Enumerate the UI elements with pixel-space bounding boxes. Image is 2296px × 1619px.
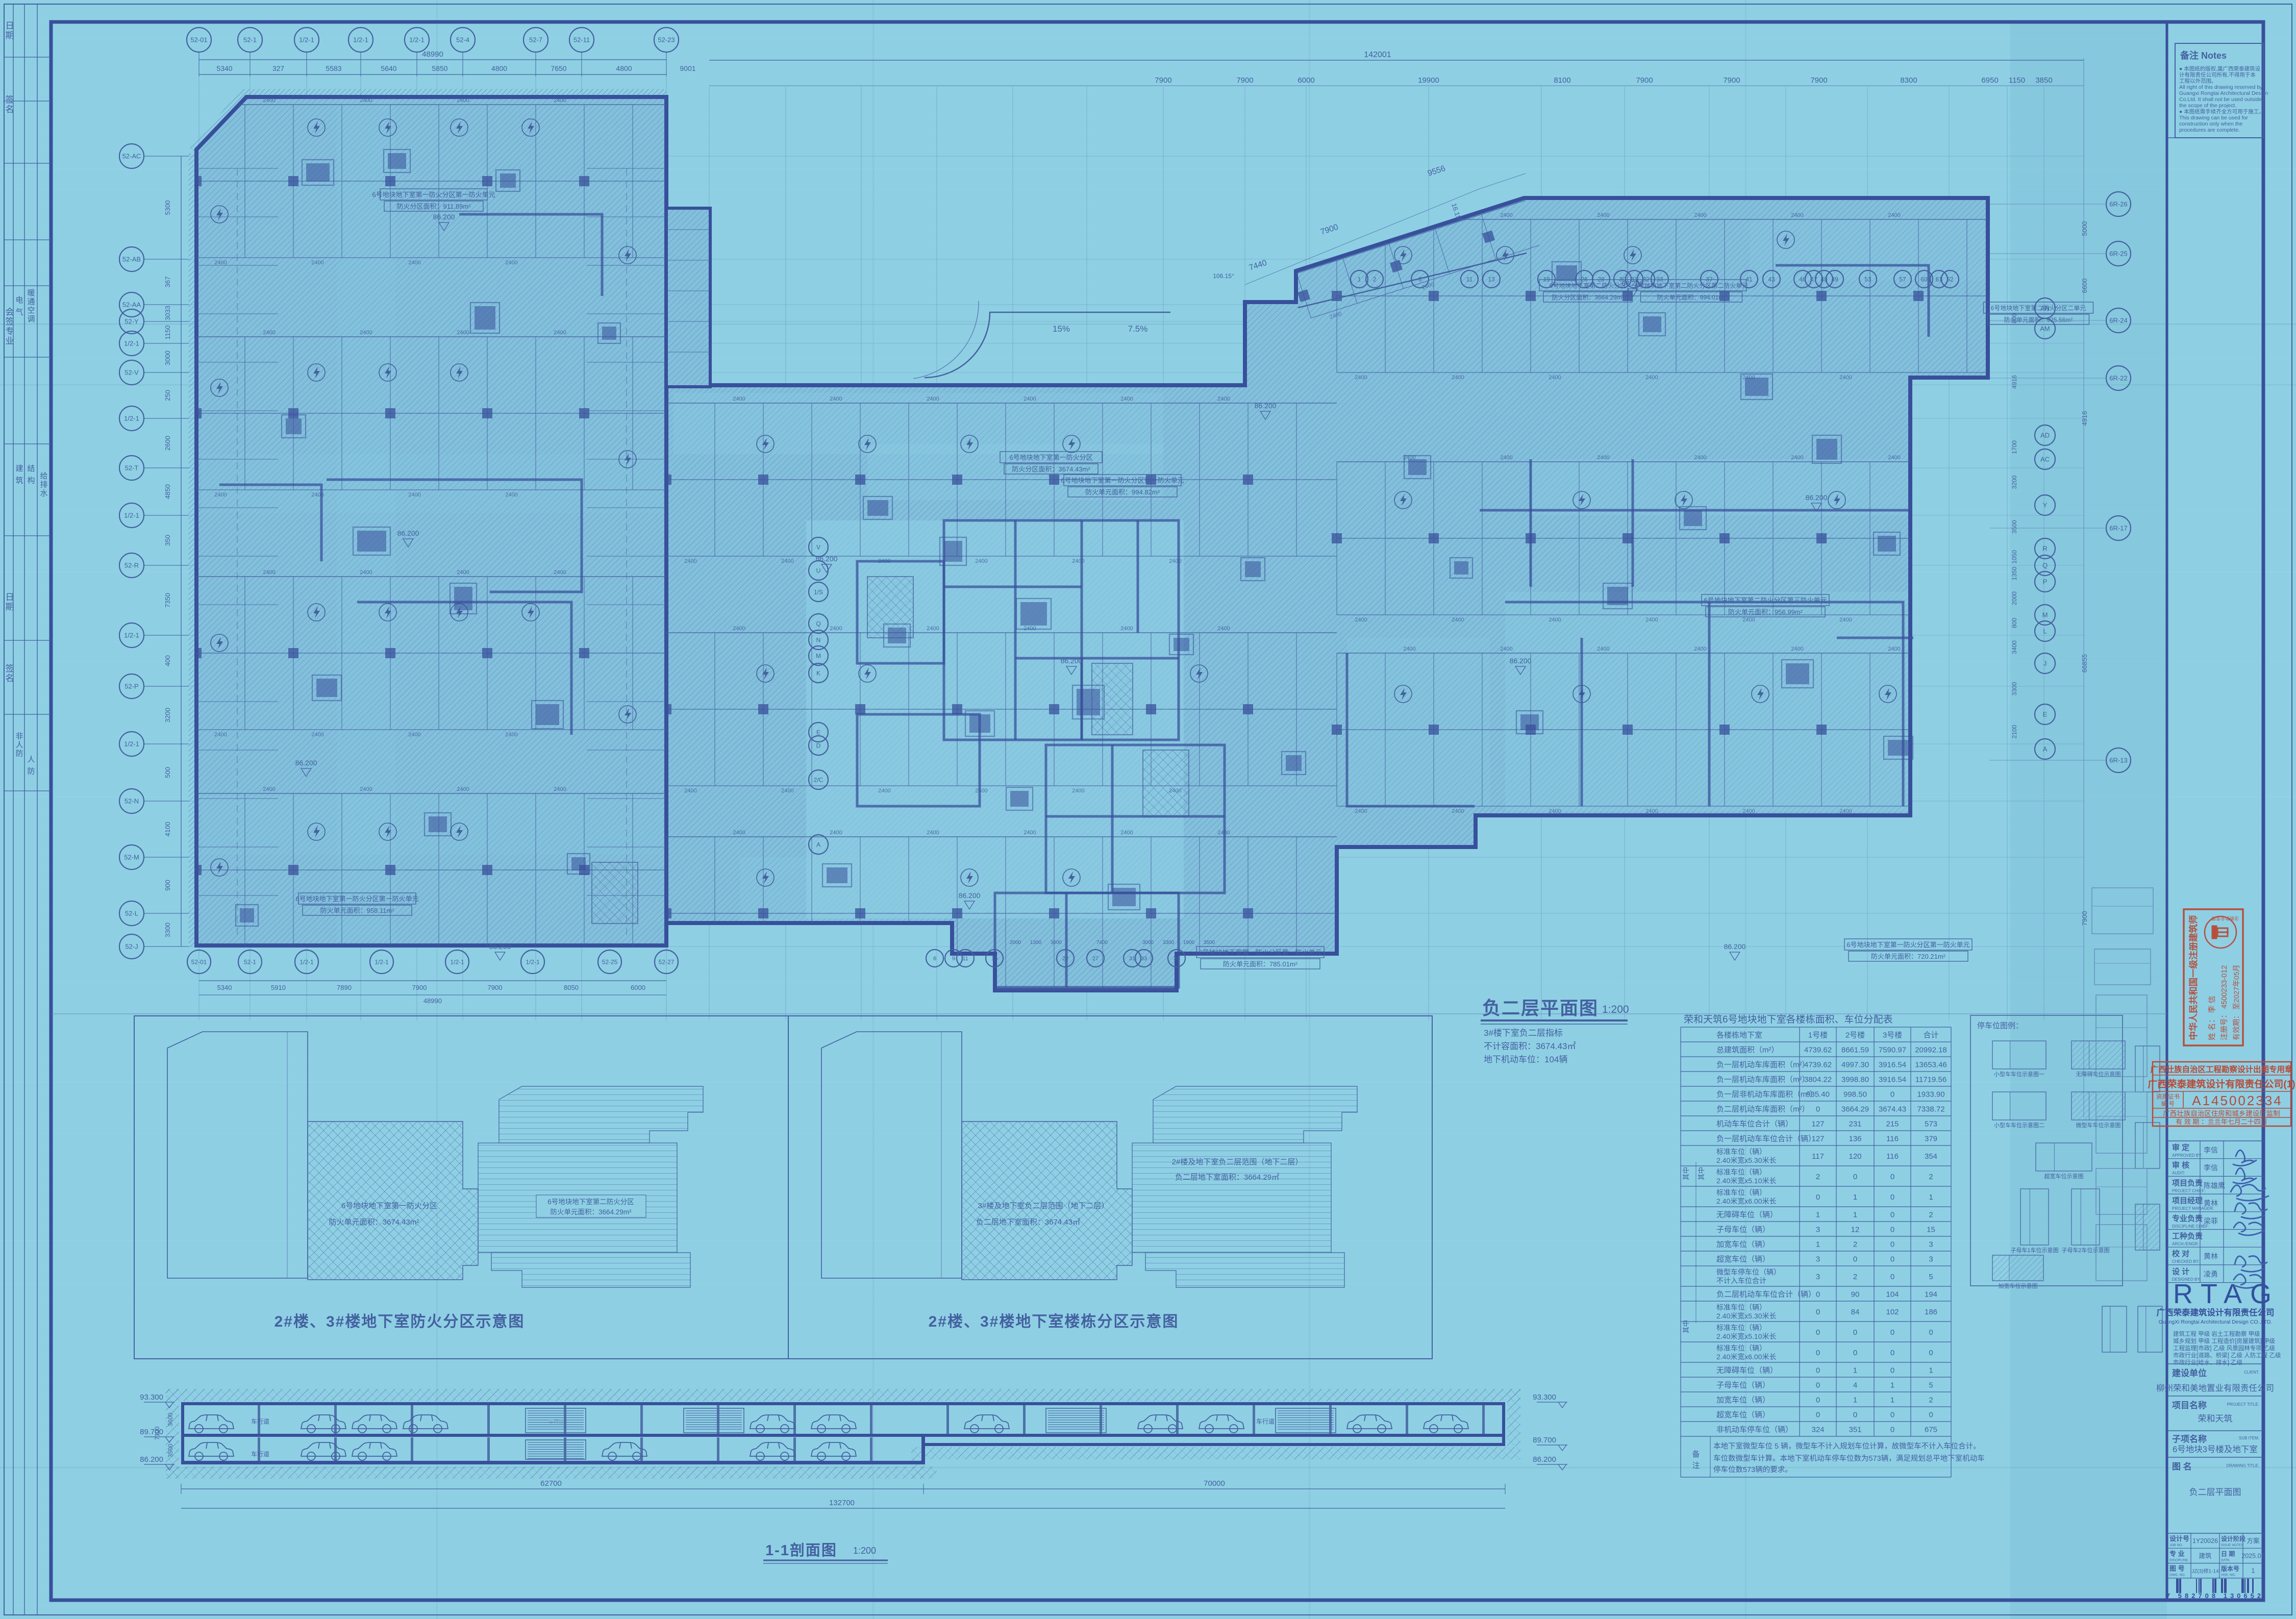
svg-text:0: 0 [1929, 1349, 1933, 1357]
svg-text:4739.62: 4739.62 [1804, 1046, 1832, 1055]
svg-text:13653.46: 13653.46 [1915, 1061, 1947, 1069]
svg-text:19: 19 [1543, 276, 1550, 283]
svg-text:项目名称: 项目名称 [2172, 1400, 2207, 1410]
svg-text:超宽车位示意图: 超宽车位示意图 [2044, 1173, 2084, 1180]
svg-text:防火单元面积：956.99m²: 防火单元面积：956.99m² [1728, 608, 1803, 616]
svg-text:黄林: 黄林 [2204, 1252, 2218, 1260]
svg-text:标准车位（辆）: 标准车位（辆） [1716, 1324, 1766, 1332]
svg-text:52-1: 52-1 [243, 36, 257, 44]
svg-text:142001: 142001 [1364, 51, 1391, 59]
svg-text:2400: 2400 [311, 732, 323, 738]
svg-text:车位数微型车计算。本地下室机动车停车位数为573辆，满足规划: 车位数微型车计算。本地下室机动车停车位数为573辆，满足规划总平地下室机动车 [1713, 1454, 1985, 1463]
svg-text:11719.56: 11719.56 [1915, 1076, 1946, 1084]
svg-text:结 构: 结 构 [27, 464, 35, 485]
svg-text:2#楼及地下室负二层范围（地下二层）: 2#楼及地下室负二层范围（地下二层） [1172, 1158, 1303, 1166]
svg-text:52-01: 52-01 [191, 958, 207, 965]
svg-text:52-23: 52-23 [658, 36, 675, 44]
svg-text:小型车车位示意图一: 小型车车位示意图一 [1994, 1070, 2044, 1078]
svg-text:13: 13 [1488, 276, 1495, 283]
svg-text:7900: 7900 [1236, 76, 1253, 85]
svg-text:3#楼下室负二层指标: 3#楼下室负二层指标 [1484, 1028, 1563, 1038]
svg-text:CLIENT.: CLIENT. [2244, 1370, 2259, 1375]
svg-text:6600: 6600 [2081, 279, 2088, 293]
svg-text:3号楼: 3号楼 [1883, 1031, 1902, 1040]
svg-text:会签专业: 会签专业 [4, 307, 14, 346]
svg-text:2400: 2400 [1120, 396, 1133, 402]
svg-text:0: 0 [1890, 1426, 1894, 1434]
svg-text:1/2-1: 1/2-1 [124, 340, 139, 347]
svg-text:签名: 签名 [4, 664, 14, 683]
svg-text:6: 6 [933, 956, 936, 962]
svg-text:32: 32 [1642, 276, 1650, 283]
svg-text:有 效 期 ：亖亖年七月二十四日: 有 效 期 ：亖亖年七月二十四日 [2176, 1118, 2267, 1126]
svg-text:This drawing can be used for: This drawing can be used for [2179, 115, 2248, 121]
svg-text:1号楼: 1号楼 [1808, 1031, 1828, 1040]
svg-text:ISSUE NOTES: ISSUE NOTES [2221, 1543, 2243, 1547]
svg-text:4800: 4800 [491, 64, 507, 72]
svg-text:0: 0 [1890, 1193, 1894, 1202]
svg-text:0: 0 [1853, 1328, 1857, 1337]
svg-text:2400: 2400 [360, 786, 372, 792]
svg-text:2: 2 [1929, 1173, 1933, 1181]
svg-text:2400: 2400 [733, 396, 745, 402]
svg-text:0: 0 [1890, 1273, 1894, 1281]
svg-text:60: 60 [1920, 276, 1928, 283]
svg-text:52-11: 52-11 [573, 36, 590, 44]
svg-text:2400: 2400 [1120, 626, 1133, 632]
svg-text:5640: 5640 [381, 64, 396, 72]
svg-text:3916.54: 3916.54 [1879, 1061, 1906, 1069]
svg-text:M: M [2042, 611, 2048, 619]
svg-text:7900: 7900 [488, 984, 503, 991]
svg-text:2400: 2400 [1500, 646, 1512, 652]
svg-text:2400: 2400 [1452, 808, 1464, 814]
svg-text:1-1剖面图: 1-1剖面图 [765, 1541, 837, 1559]
svg-text:2400: 2400 [1645, 808, 1658, 814]
svg-text:负二层平面图: 负二层平面图 [2189, 1487, 2241, 1497]
svg-text:52-J: 52-J [125, 943, 138, 951]
svg-text:66855: 66855 [2081, 654, 2088, 672]
svg-text:2400: 2400 [360, 97, 372, 104]
svg-text:1/2-1: 1/2-1 [353, 36, 368, 44]
svg-text:19900: 19900 [1418, 76, 1439, 85]
svg-text:1: 1 [1853, 1396, 1857, 1405]
svg-text:6R-17: 6R-17 [2109, 525, 2127, 532]
svg-text:7100: 7100 [154, 1426, 161, 1440]
svg-text:李信: 李信 [2204, 1164, 2218, 1172]
svg-text:3500: 3500 [1204, 940, 1215, 945]
svg-text:86.200: 86.200 [140, 1455, 163, 1464]
svg-text:负二层地下室面积：3664.29㎡: 负二层地下室面积：3664.29㎡ [1175, 1173, 1279, 1182]
svg-text:52-AA: 52-AA [122, 301, 141, 309]
svg-text:231: 231 [1849, 1120, 1861, 1129]
svg-text:超宽车位（辆）: 超宽车位（辆） [1716, 1411, 1770, 1419]
svg-text:0: 0 [1929, 1411, 1933, 1419]
svg-text:项目经理: 项目经理 [2172, 1196, 2203, 1205]
svg-text:1/2-1: 1/2-1 [124, 740, 139, 748]
svg-text:2400: 2400 [1742, 617, 1755, 623]
svg-text:2400: 2400 [733, 830, 745, 836]
svg-text:1150: 1150 [2009, 76, 2025, 85]
svg-text:N: N [816, 636, 821, 643]
svg-text:6号地块地下室第一防火分区第一防火单元: 6号地块地下室第一防火分区第一防火单元 [1846, 941, 1969, 949]
svg-text:2#楼、3#楼地下室楼栋分区示意图: 2#楼、3#楼地下室楼栋分区示意图 [929, 1313, 1179, 1330]
svg-text:暖通空调: 暖通空调 [27, 289, 35, 323]
svg-text:1/2-1: 1/2-1 [526, 958, 540, 965]
svg-text:53: 53 [1864, 276, 1871, 283]
svg-text:2400: 2400 [554, 330, 566, 336]
svg-text:3500: 3500 [2011, 520, 2018, 534]
svg-text:1900: 1900 [1183, 940, 1195, 945]
svg-text:52-L: 52-L [125, 910, 138, 917]
svg-text:DATE.: DATE. [2221, 1558, 2231, 1562]
svg-text:● 本图纸需手续齐全方可用于施工。: ● 本图纸需手续齐全方可用于施工。 [2179, 108, 2264, 115]
svg-text:3: 3 [1816, 1255, 1820, 1264]
svg-text:2400: 2400 [975, 788, 987, 794]
svg-text:6: 6 [1418, 276, 1422, 283]
svg-text:广西壮族自治区住房和城乡建设厅监制: 广西壮族自治区住房和城乡建设厅监制 [2163, 1110, 2280, 1117]
svg-text:工程监理[市政] 乙级 风景园林专项 乙级: 工程监理[市政] 乙级 风景园林专项 乙级 [2173, 1344, 2275, 1352]
svg-text:6R-22: 6R-22 [2109, 375, 2127, 382]
svg-text:加宽车位示意图: 加宽车位示意图 [1999, 1282, 2038, 1289]
svg-text:2400: 2400 [1403, 646, 1415, 652]
svg-text:2400: 2400 [684, 788, 696, 794]
svg-text:2400: 2400 [1839, 375, 1852, 381]
svg-text:1Y20026: 1Y20026 [2192, 1537, 2218, 1545]
svg-text:防火分区面积：3674.43m²: 防火分区面积：3674.43m² [1012, 465, 1090, 473]
svg-text:70000: 70000 [1204, 1479, 1225, 1488]
svg-text:3: 3 [1816, 1273, 1820, 1281]
svg-text:机动车车位合计（辆）: 机动车车位合计（辆） [1716, 1120, 1793, 1129]
svg-text:86.200: 86.200 [1533, 1455, 1556, 1464]
svg-text:0: 0 [1816, 1290, 1820, 1299]
svg-text:2400: 2400 [505, 492, 517, 498]
svg-text:1/2-1: 1/2-1 [375, 958, 389, 965]
svg-text:4916: 4916 [2011, 375, 2018, 389]
svg-text:防火单元面积：785.01m²: 防火单元面积：785.01m² [1223, 960, 1298, 968]
svg-text:31: 31 [1129, 956, 1135, 962]
svg-text:城乡规划 甲级 工程造价[房屋建筑] 甲级: 城乡规划 甲级 工程造价[房屋建筑] 甲级 [2173, 1337, 2275, 1344]
svg-text:停车位数573辆的要求。: 停车位数573辆的要求。 [1713, 1465, 1792, 1474]
svg-text:2400: 2400 [1645, 375, 1658, 381]
svg-text:无障碍车位（辆）: 无障碍车位（辆） [1716, 1366, 1778, 1375]
svg-text:2400: 2400 [781, 558, 793, 564]
svg-text:2400: 2400 [1791, 212, 1803, 218]
svg-text:2#楼、3#楼地下室防火分区示意图: 2#楼、3#楼地下室防火分区示意图 [274, 1313, 525, 1330]
svg-text:6号地块地下室第一防火分区: 6号地块地下室第一防火分区 [341, 1201, 437, 1210]
svg-text:7900: 7900 [1155, 76, 1171, 85]
svg-text:中华人民共和国一级注册建筑师: 中华人民共和国一级注册建筑师 [2188, 915, 2199, 1040]
svg-text:84: 84 [1851, 1308, 1860, 1316]
svg-text:3: 3 [1929, 1240, 1933, 1249]
svg-text:负二层平面图: 负二层平面图 [1482, 998, 1599, 1018]
svg-text:有效期： 至2027年05月: 有效期： 至2027年05月 [2232, 964, 2240, 1040]
svg-text:1300: 1300 [1030, 940, 1042, 945]
svg-text:5300: 5300 [164, 201, 171, 215]
svg-text:2: 2 [1853, 1273, 1857, 1281]
svg-text:52-01: 52-01 [190, 36, 207, 44]
svg-text:DISCIPLINE.: DISCIPLINE. [2169, 1558, 2189, 1562]
svg-text:荣和天筑6号地块地下室各楼栋面积、车位分配表: 荣和天筑6号地块地下室各楼栋面积、车位分配表 [1684, 1014, 1893, 1025]
svg-text:0: 0 [1929, 1328, 1933, 1337]
svg-text:DWG. NO.: DWG. NO. [2169, 1574, 2185, 1577]
svg-text:专业负责: 专业负责 [2172, 1214, 2203, 1223]
svg-text:57: 57 [1899, 276, 1906, 283]
svg-text:86.200: 86.200 [1255, 402, 1277, 410]
svg-text:0: 0 [1890, 1349, 1894, 1357]
svg-text:36: 36 [1174, 956, 1180, 962]
svg-text:防火分区面积：3664.29m²: 防火分区面积：3664.29m² [1552, 293, 1624, 301]
svg-text:M: M [816, 652, 821, 659]
svg-text:7650: 7650 [551, 64, 566, 72]
svg-text:SUB ITEM.: SUB ITEM. [2239, 1436, 2259, 1440]
svg-text:0: 0 [1890, 1240, 1894, 1249]
svg-text:2400: 2400 [1024, 396, 1036, 402]
svg-text:R: R [2042, 545, 2047, 553]
svg-text:子项名称: 子项名称 [2172, 1434, 2207, 1444]
svg-text:广西荣泰建筑设计有限责任公司: 广西荣泰建筑设计有限责任公司 [2157, 1307, 2275, 1317]
svg-text:3000: 3000 [1051, 940, 1062, 945]
svg-text:0: 0 [1816, 1396, 1820, 1405]
svg-text:327: 327 [272, 64, 285, 72]
svg-text:子母车2车位示意图: 子母车2车位示意图 [2061, 1247, 2109, 1254]
svg-text:各楼栋地下室: 各楼栋地下室 [1716, 1031, 1762, 1040]
svg-text:2400: 2400 [1217, 396, 1230, 402]
svg-text:194: 194 [1925, 1290, 1937, 1299]
svg-text:2400: 2400 [1452, 617, 1464, 623]
svg-text:0: 0 [1890, 1211, 1894, 1219]
svg-text:2400: 2400 [457, 330, 469, 336]
svg-text:7338.72: 7338.72 [1917, 1105, 1944, 1114]
svg-text:小型车车位示意图二: 小型车车位示意图二 [1994, 1122, 2044, 1129]
svg-text:超宽车位（辆）: 超宽车位（辆） [1716, 1255, 1770, 1264]
svg-text:52-1: 52-1 [244, 958, 256, 965]
svg-text:22: 22 [1062, 956, 1068, 962]
svg-text:车行道: 车行道 [251, 1450, 269, 1458]
svg-text:子母车1车位示意图: 子母车1车位示意图 [2010, 1247, 2058, 1254]
svg-text:62700: 62700 [540, 1479, 562, 1488]
svg-text:4739.62: 4739.62 [1804, 1061, 1832, 1069]
svg-text:广西荣泰建筑设计有限责任公司(1): 广西荣泰建筑设计有限责任公司(1) [2148, 1078, 2295, 1090]
svg-text:102: 102 [1886, 1308, 1899, 1316]
svg-text:3200: 3200 [164, 708, 171, 723]
svg-text:3200: 3200 [2011, 475, 2018, 489]
svg-text:37: 37 [1706, 276, 1713, 283]
svg-text:总建筑面积（m²）: 总建筑面积（m²） [1716, 1046, 1779, 1055]
svg-text:2400: 2400 [1072, 788, 1084, 794]
svg-text:2400: 2400 [554, 97, 566, 104]
svg-text:AD: AD [2040, 432, 2050, 439]
svg-text:建筑工程 甲级 岩土工程勘察 甲级: 建筑工程 甲级 岩土工程勘察 甲级 [2173, 1330, 2260, 1337]
svg-text:3033: 3033 [164, 306, 171, 320]
svg-text:2.40米宽x5.10米长: 2.40米宽x5.10米长 [1716, 1177, 1777, 1185]
svg-text:1: 1 [1853, 1193, 1857, 1202]
svg-text:6号地块地下室第二防火分区二单元: 6号地块地下室第二防火分区二单元 [1991, 304, 2086, 312]
svg-text:2.40米宽x5.10米长: 2.40米宽x5.10米长 [1716, 1332, 1777, 1340]
svg-text:2400: 2400 [1120, 830, 1133, 836]
svg-text:广西壮族自治区工程勘察设计出图专用章: 广西壮族自治区工程勘察设计出图专用章 [2150, 1064, 2293, 1074]
svg-text:3850: 3850 [2035, 76, 2052, 85]
svg-text:版本号: 版本号 [2221, 1565, 2239, 1573]
svg-text:0: 0 [1853, 1255, 1857, 1264]
svg-text:136: 136 [1849, 1135, 1861, 1143]
svg-text:0: 0 [1816, 1381, 1820, 1390]
svg-text:1150: 1150 [164, 326, 171, 340]
svg-text:6R-13: 6R-13 [2109, 757, 2127, 764]
svg-text:5: 5 [1929, 1381, 1933, 1390]
svg-text:标准车位（辆）: 标准车位（辆） [1716, 1148, 1766, 1156]
svg-text:标准车位（辆）: 标准车位（辆） [1716, 1168, 1766, 1176]
svg-text:215: 215 [1886, 1120, 1899, 1129]
svg-text:7900: 7900 [412, 984, 427, 991]
svg-text:935.40: 935.40 [1806, 1090, 1830, 1099]
svg-text:0: 0 [1890, 1255, 1894, 1264]
svg-text:P: P [2043, 578, 2048, 586]
svg-text:市政行业[给水、排水] 乙级: 市政行业[给水、排水] 乙级 [2173, 1359, 2243, 1366]
svg-text:3000: 3000 [1142, 940, 1154, 945]
svg-text:其中: 其中 [1698, 1167, 1705, 1180]
svg-text:3804.22: 3804.22 [1804, 1076, 1832, 1084]
svg-text:0: 0 [1816, 1366, 1820, 1375]
svg-text:A145002334: A145002334 [2192, 1093, 2282, 1108]
svg-text:E: E [2043, 711, 2048, 718]
svg-text:0: 0 [1816, 1105, 1820, 1114]
svg-text:800: 800 [2011, 313, 2018, 323]
svg-text:1: 1 [1816, 1211, 1820, 1219]
svg-text:1/2-1: 1/2-1 [300, 958, 314, 965]
svg-text:15: 15 [991, 956, 997, 962]
svg-text:资质证书: 资质证书 [2156, 1093, 2180, 1100]
svg-text:86.200: 86.200 [397, 529, 419, 537]
svg-text:0: 0 [1853, 1349, 1857, 1357]
svg-text:15%: 15% [1053, 324, 1070, 334]
svg-text:2400: 2400 [927, 396, 939, 402]
svg-text:52-T: 52-T [125, 464, 139, 472]
svg-text:0: 0 [1890, 1173, 1894, 1181]
svg-text:0: 0 [1816, 1411, 1820, 1419]
svg-text:20992.18: 20992.18 [1915, 1046, 1947, 1055]
svg-text:2400: 2400 [214, 732, 227, 738]
svg-text:Y: Y [2043, 502, 2048, 509]
svg-text:2100: 2100 [2011, 725, 2018, 738]
svg-text:2400: 2400 [457, 97, 469, 104]
svg-text:计有限责任公司所有,不得用于本: 计有限责任公司所有,不得用于本 [2179, 71, 2256, 78]
svg-text:1: 1 [1853, 1366, 1857, 1375]
svg-text:the scope of the project.: the scope of the project. [2179, 103, 2236, 109]
svg-text:方案: 方案 [2247, 1537, 2260, 1545]
svg-text:Guangxi Rongtai Architectural: Guangxi Rongtai Architectural Design [2179, 90, 2268, 96]
svg-text:5910: 5910 [271, 984, 286, 991]
svg-text:3674.43: 3674.43 [1879, 1105, 1906, 1114]
svg-text:7900: 7900 [1636, 76, 1653, 85]
svg-text:7890: 7890 [337, 984, 352, 991]
svg-text:防火单元面积：994.82m²: 防火单元面积：994.82m² [1085, 488, 1160, 496]
svg-text:2400: 2400 [1024, 830, 1036, 836]
svg-text:梁菲: 梁菲 [2204, 1217, 2218, 1225]
svg-text:52-R: 52-R [124, 562, 139, 569]
svg-text:1: 1 [1853, 1211, 1857, 1219]
svg-text:不计容面积：3674.43㎡: 不计容面积：3674.43㎡ [1484, 1041, 1576, 1051]
svg-text:2400: 2400 [1694, 455, 1706, 461]
svg-text:2400: 2400 [1839, 617, 1852, 623]
svg-text:项目负责: 项目负责 [2172, 1178, 2203, 1187]
svg-text:350: 350 [164, 535, 171, 546]
svg-text:非人防: 非人防 [15, 732, 23, 758]
svg-text:0: 0 [1816, 1193, 1820, 1202]
svg-text:7350: 7350 [164, 593, 171, 608]
svg-text:5000: 5000 [2081, 221, 2088, 236]
svg-text:5: 5 [1929, 1273, 1933, 1281]
svg-text:6号地块地下室第二防火分区: 6号地块地下室第二防火分区 [547, 1198, 634, 1206]
svg-text:Co.Ltd. It shall not be used o: Co.Ltd. It shall not be used outside [2179, 96, 2262, 103]
svg-text:15: 15 [1927, 1226, 1935, 1234]
svg-text:8100: 8100 [1554, 76, 1570, 85]
svg-text:1: 1 [1890, 1381, 1894, 1390]
svg-text:2: 2 [1929, 1396, 1933, 1405]
svg-text:3#楼及地下室负二层范围（地下二层）: 3#楼及地下室负二层范围（地下二层） [978, 1202, 1109, 1210]
svg-text:1: 1 [1890, 1396, 1894, 1405]
svg-text:11: 11 [962, 956, 968, 962]
svg-text:其中: 其中 [1682, 1167, 1690, 1180]
svg-text:48990: 48990 [422, 50, 443, 59]
svg-text:132700: 132700 [829, 1499, 855, 1507]
svg-text:1/S: 1/S [814, 588, 823, 595]
svg-text:6号地块地下室第一防火分区第一防火单元: 6号地块地下室第一防火分区第一防火单元 [295, 895, 418, 903]
svg-text:90: 90 [1851, 1290, 1860, 1299]
svg-text:2000: 2000 [1010, 940, 1021, 945]
svg-text:0: 0 [1853, 1173, 1857, 1181]
svg-text:2400: 2400 [457, 786, 469, 792]
svg-text:2400: 2400 [1645, 617, 1658, 623]
svg-text:标准车位（辆）: 标准车位（辆） [1716, 1188, 1766, 1197]
svg-text:62: 62 [1946, 276, 1954, 283]
svg-text:6950: 6950 [1981, 76, 1998, 85]
svg-text:负一层机动车库面积（m²）: 负一层机动车库面积（m²） [1716, 1076, 1810, 1084]
svg-text:400: 400 [164, 655, 171, 666]
svg-text:备注 Notes: 备注 Notes [2180, 50, 2227, 61]
svg-text:RTAG: RTAG [2173, 1279, 2280, 1309]
svg-text:2400: 2400 [408, 260, 420, 266]
svg-text:86.200: 86.200 [1510, 657, 1532, 665]
svg-text:设计号: 设计号 [2169, 1535, 2189, 1542]
svg-text:车行道: 车行道 [251, 1417, 269, 1425]
svg-text:8661.59: 8661.59 [1841, 1046, 1869, 1055]
svg-text:4800: 4800 [616, 64, 632, 72]
svg-text:3300: 3300 [1163, 940, 1175, 945]
svg-text:186: 186 [1925, 1308, 1937, 1316]
svg-text:6R-24: 6R-24 [2109, 317, 2127, 325]
svg-text:5340: 5340 [217, 984, 232, 991]
svg-text:12: 12 [1851, 1226, 1860, 1234]
svg-text:A: A [816, 841, 820, 848]
svg-text:351: 351 [1849, 1426, 1861, 1434]
svg-text:8300: 8300 [1900, 76, 1917, 85]
svg-text:33: 33 [1656, 276, 1663, 283]
svg-text:6号地块3号楼及地下室: 6号地块3号楼及地下室 [2173, 1444, 2258, 1454]
svg-text:6000: 6000 [631, 984, 645, 991]
svg-text:0: 0 [1890, 1090, 1894, 1099]
svg-text:52-27: 52-27 [659, 958, 675, 965]
svg-text:1:200: 1:200 [1602, 1004, 1629, 1015]
svg-text:86.200: 86.200 [1806, 493, 1828, 502]
svg-text:PROJECT CHIEF:: PROJECT CHIEF: [2172, 1188, 2206, 1193]
svg-text:2.40米宽x5.30米长: 2.40米宽x5.30米长 [1716, 1312, 1777, 1320]
svg-text:子母车位（辆）: 子母车位（辆） [1716, 1381, 1770, 1390]
svg-text:1/2-1: 1/2-1 [299, 36, 314, 44]
svg-text:GuangXi Rongtai Architectural: GuangXi Rongtai Architectural Design CO.… [2159, 1319, 2273, 1325]
svg-text:1/2-1: 1/2-1 [409, 36, 425, 44]
svg-text:2400: 2400 [733, 626, 745, 632]
